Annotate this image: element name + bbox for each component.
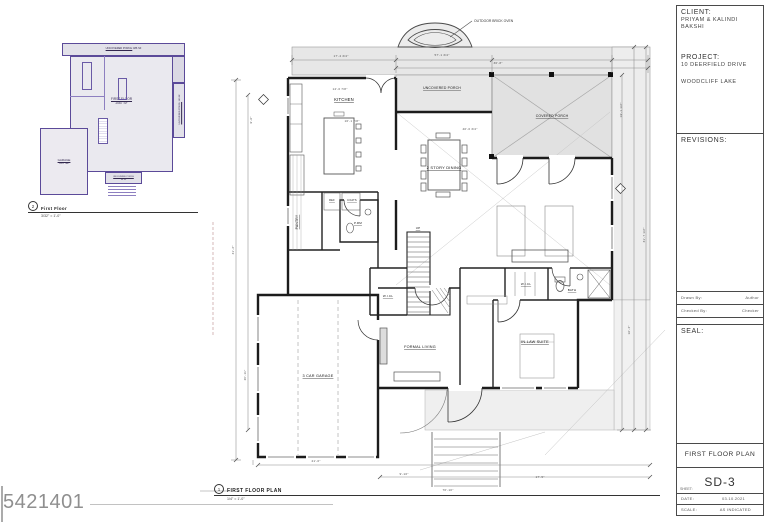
dim-label: 9'-10" [399,472,408,476]
room-label: KITCHEN [334,97,354,102]
inset-steps [108,186,136,187]
drawn-by-label: Drawn By: [681,295,702,300]
room-label: IN-LAW SUITE [521,340,549,344]
inset-wall-line [70,96,104,97]
room-label: UP [416,226,421,230]
oven-annotation: OUTDOOR BRICK OVEN [474,19,514,23]
inset-caption-scale: 3/32" = 1'-0" [41,214,198,218]
outdoor-brick-oven [398,23,472,48]
dim-label: 9'-6" [249,116,253,123]
dim-label: 40'-0 3/4" [462,127,477,131]
inset-area: GARAGE667 SF [40,128,88,195]
drawing-sheet: KITCHENUNCOVERED PORCHCOVERED PORCH2 STO… [0,0,768,522]
inset-caption-number: 2 [28,201,38,211]
inset-area: UNCOVERED PORCH66 SF [105,172,142,184]
room-label: W.I.CL [521,282,531,286]
dim-label: 41'-2" [231,245,235,254]
interior-walls [288,192,612,388]
drawn-by-value: Author [745,295,759,300]
dim-label: 57'-1 3/4" [434,53,449,57]
checked-by-row: Checked By: Checker [677,305,763,318]
room-label: COVERED PORCH [536,114,569,118]
dim-label: 19'-1 1/2" [619,102,623,117]
client-label: CLIENT: [681,9,759,16]
scale-label: SCALE: [681,507,697,512]
inset-steps [108,192,136,193]
front-steps [432,432,500,487]
inset-area-sf: 486 SF [133,47,141,50]
inset-wall-line [104,56,105,110]
inset-area-label: GARAGE667 SF [41,159,87,167]
dim-label: 36'-8" [493,61,502,65]
inset-stairs [98,118,108,144]
inset-area-label: UNCOVERED PORCH66 SF [106,176,141,181]
date-label: DATE: [681,496,694,501]
project-town: WOODCLIFF LAKE [681,79,759,85]
revisions-label: REVISIONS: [681,137,759,144]
dim-label: 17'-4 3/4" [333,54,348,58]
inset-dining-table [118,78,127,100]
sheet-label: SHEET: [680,487,693,491]
main-caption-number: 1 [214,484,224,494]
dim-label: 20'-11" [243,370,247,381]
dim-label: 16'-1 7/8" [344,119,359,123]
scale-value: AS INDICATED [720,507,751,512]
room-label: UNCOVERED PORCH [423,86,461,90]
room-label: COATS [347,198,357,202]
inset-area-plan: UNCOVERED PORCH 486 SFCOVERED PORCH276 S… [36,40,198,202]
scale-row: SCALE: AS INDICATED [677,505,763,515]
drawn-by-row: Drawn By: Author [677,292,763,305]
porch-shading [292,47,650,430]
project-label: PROJECT: [681,54,759,61]
dim-label: 31'-7 1/2" [642,227,646,242]
watermark-id: 5421401 [3,491,84,514]
client-project-section: CLIENT: PRIYAM & KALINDI BAKSHI PROJECT:… [677,6,763,134]
dim-label: 17'-5" [535,475,544,479]
date-value: 03.10.2021 [722,496,745,501]
watermark-hline [90,504,333,505]
date-row: DATE: 03.10.2021 [677,494,763,505]
inset-area-sf: 2067 SF [115,101,127,105]
inset-area-sf: 66 SF [121,179,126,181]
sheet-title: FIRST FLOOR PLAN [681,451,759,458]
main-stairs [407,237,450,313]
checked-by-label: Checked By: [681,308,707,313]
room-label: REF [329,198,335,202]
dim-label: 21'-0" [311,459,320,463]
client-name-line2: BAKSHI [681,24,759,30]
inset-area: UNCOVERED PORCH 190 SF [173,83,185,138]
main-caption-scale: 1/4" = 1'-0" [227,497,660,501]
checked-by-value: Checker [742,308,759,313]
inset-area-label: UNCOVERED PORCH 486 SF [63,47,184,50]
project-address: 10 DEERFIELD DRIVE [681,62,759,68]
inset-area-name: UNCOVERED PORCH [179,101,181,124]
dim-label: 14'-0 7/8" [332,87,347,91]
room-label: FORMAL LIVING [404,345,436,349]
inset-kitchen-island [82,62,92,90]
room-label: P.RM [354,221,362,225]
sheet-title-section: FIRST FLOOR PLAN [677,444,763,468]
room-label: W.I.CL [383,294,393,298]
room-label: 2 STORY DINING [427,165,462,170]
inset-steps [108,195,136,196]
inset-caption-title: First Floor [41,206,67,211]
room-label: 3 CAR GARAGE [303,374,334,378]
dim-label: 16'-4" [627,325,631,334]
inset-area-sf: 667 SF [59,161,69,165]
title-block: CLIENT: PRIYAM & KALINDI BAKSHI PROJECT:… [676,5,764,516]
watermark-vline [1,486,3,522]
inset-area-name: UNCOVERED PORCH [106,47,133,50]
inset-area-label: UNCOVERED PORCH 190 SF [179,81,182,136]
inset-caption: 2 First Floor 3/32" = 1'-0" [28,201,198,218]
sheet-number-section: SD-3 SHEET: [677,468,763,494]
main-caption: 1 FIRST FLOOR PLAN 1/4" = 1'-0" [214,484,660,501]
inset-area-sf: 190 SF [179,94,181,101]
seal-section: SEAL: [677,324,763,444]
inset-steps [108,189,136,190]
inset-area: UNCOVERED PORCH 486 SF [62,43,185,56]
main-caption-title: FIRST FLOOR PLAN [227,488,282,494]
seal-label: SEAL: [681,328,759,335]
room-label: BATH [568,288,577,292]
revisions-section: REVISIONS: [677,134,763,292]
client-name-line1: PRIYAM & KALINDI [681,17,759,23]
room-label: PANTRY [295,214,299,229]
